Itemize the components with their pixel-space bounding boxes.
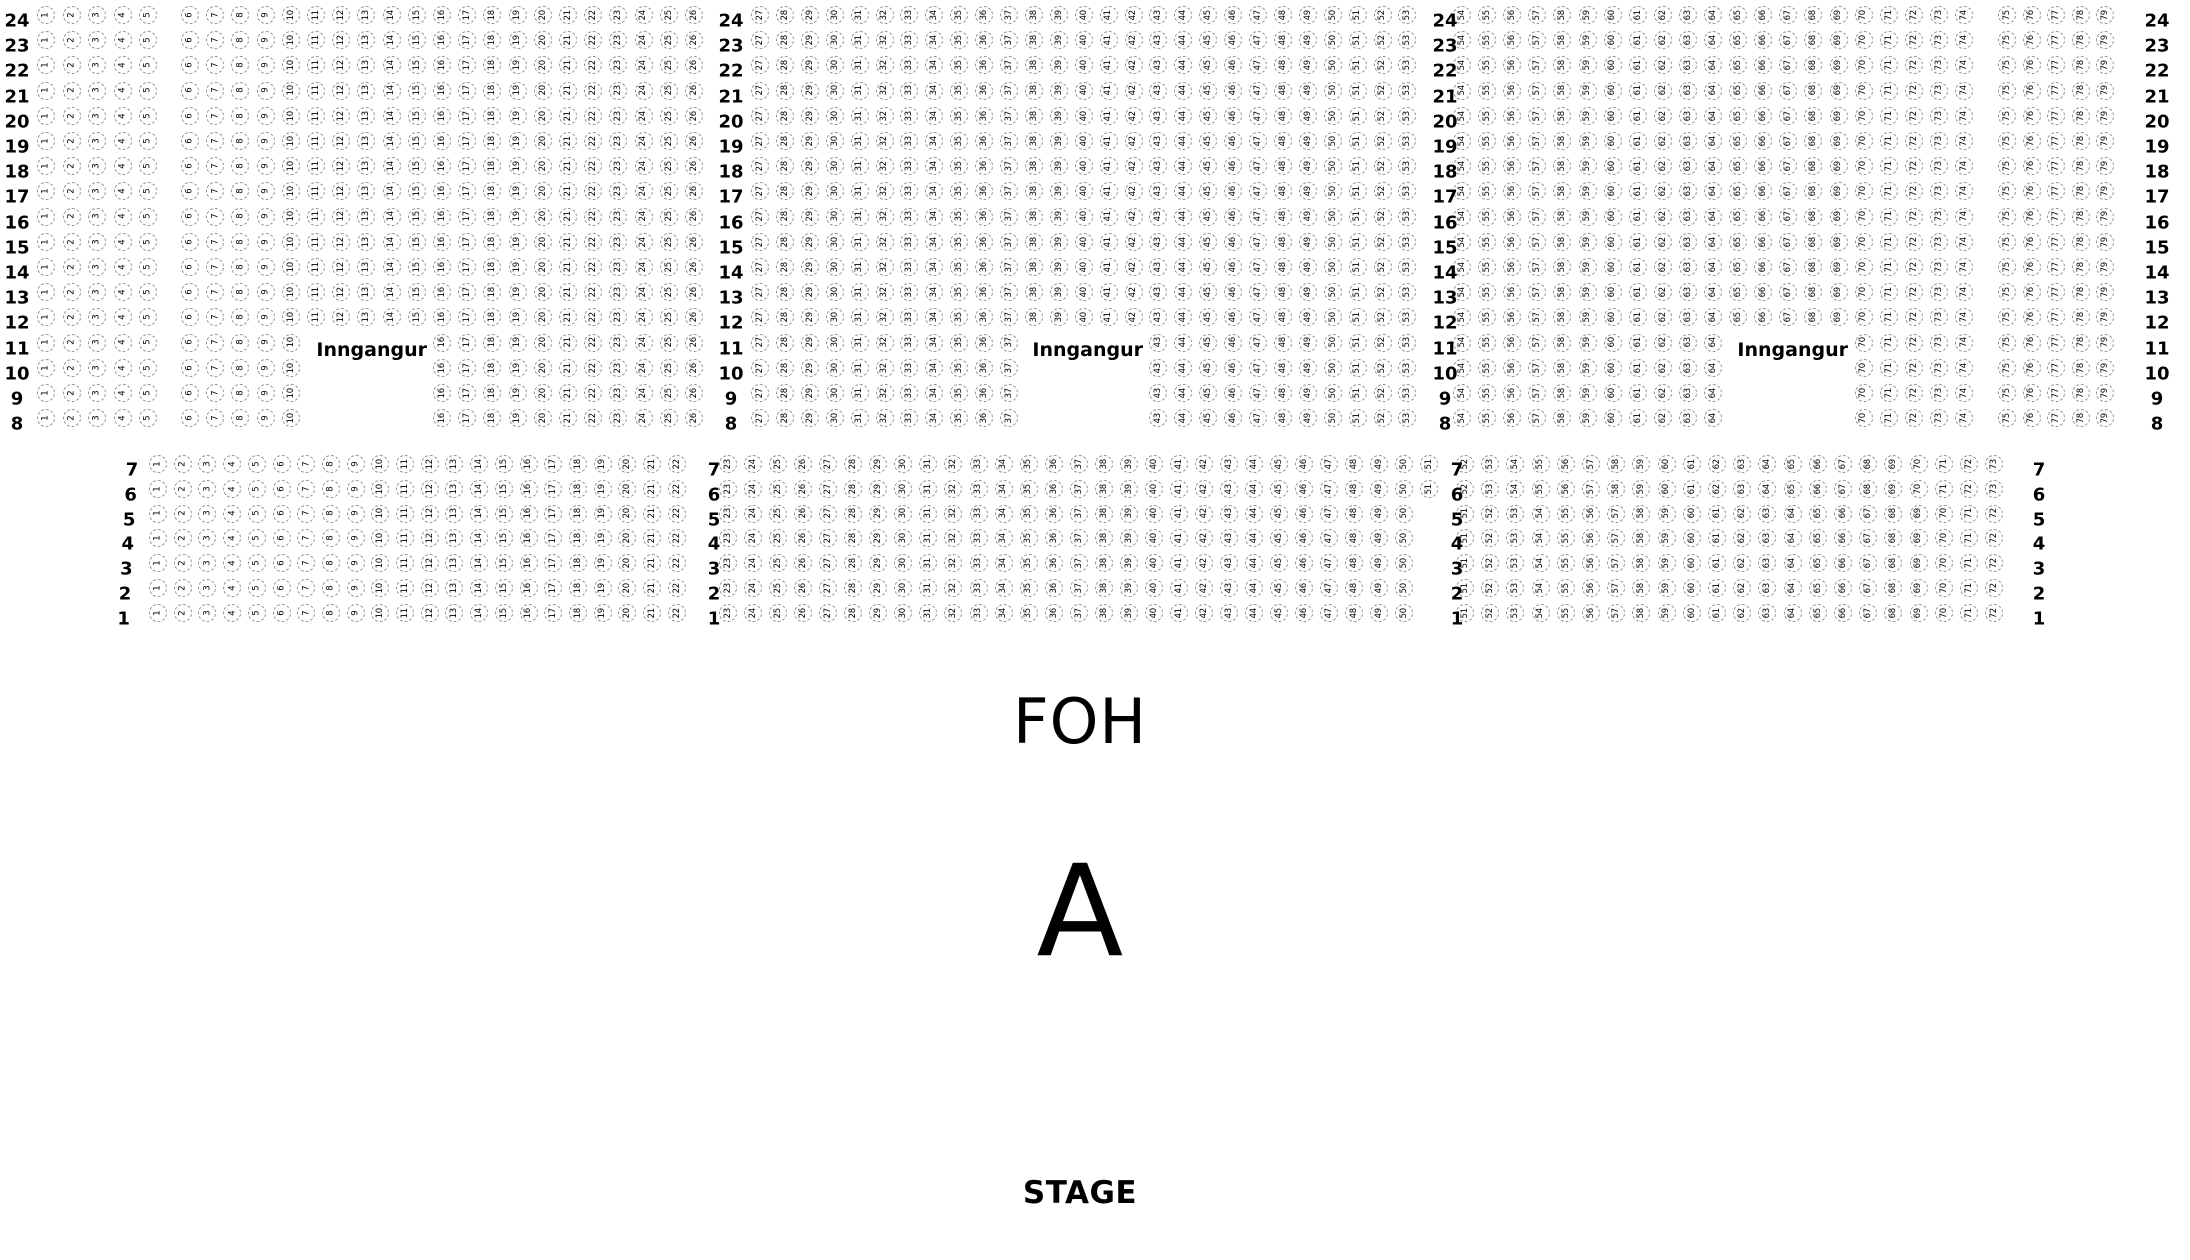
seat[interactable]: 25	[660, 283, 678, 301]
seat[interactable]: 6	[273, 455, 291, 473]
seat[interactable]: 60	[1604, 308, 1622, 326]
seat[interactable]: 32	[876, 384, 894, 402]
seat[interactable]: 29	[801, 334, 819, 352]
seat[interactable]: 9	[257, 31, 275, 49]
seat[interactable]: 65	[1729, 157, 1747, 175]
seat[interactable]: 39	[1050, 82, 1068, 100]
seat[interactable]: 75	[1998, 308, 2016, 326]
seat[interactable]: 52	[1374, 157, 1392, 175]
seat[interactable]: 10	[282, 409, 300, 427]
seat[interactable]: 7	[297, 579, 315, 597]
seat[interactable]: 56	[1503, 208, 1521, 226]
seat[interactable]: 70	[1855, 132, 1873, 150]
seat[interactable]: 36	[1045, 480, 1063, 498]
seat[interactable]: 61	[1683, 480, 1701, 498]
seat[interactable]: 16	[433, 82, 451, 100]
seat[interactable]: 46	[1224, 6, 1242, 24]
seat[interactable]: 13	[445, 455, 463, 473]
seat[interactable]: 27	[751, 409, 769, 427]
seat[interactable]: 30	[894, 529, 912, 547]
seat[interactable]: 3	[88, 233, 106, 251]
seat[interactable]: 53	[1398, 359, 1416, 377]
seat[interactable]: 29	[801, 409, 819, 427]
seat[interactable]: 65	[1729, 107, 1747, 125]
seat[interactable]: 21	[643, 604, 661, 622]
seat[interactable]: 53	[1398, 334, 1416, 352]
seat[interactable]: 29	[801, 132, 819, 150]
seat[interactable]: 11	[307, 132, 325, 150]
seat[interactable]: 27	[751, 258, 769, 276]
seat[interactable]: 37	[1000, 132, 1018, 150]
seat[interactable]: 50	[1324, 82, 1342, 100]
seat[interactable]: 38	[1095, 505, 1113, 523]
seat[interactable]: 44	[1245, 579, 1263, 597]
seat[interactable]: 14	[470, 579, 488, 597]
seat[interactable]: 41	[1100, 258, 1118, 276]
seat[interactable]: 36	[1045, 554, 1063, 572]
seat[interactable]: 32	[944, 505, 962, 523]
seat[interactable]: 40	[1145, 529, 1163, 547]
seat[interactable]: 64	[1784, 529, 1802, 547]
seat[interactable]: 7	[206, 31, 224, 49]
seat[interactable]: 8	[231, 308, 249, 326]
seat[interactable]: 44	[1174, 308, 1192, 326]
seat[interactable]: 4	[114, 359, 132, 377]
seat[interactable]: 42	[1125, 157, 1143, 175]
seat[interactable]: 47	[1249, 6, 1267, 24]
seat[interactable]: 1	[149, 529, 167, 547]
seat[interactable]: 20	[618, 604, 636, 622]
seat[interactable]: 57	[1607, 554, 1625, 572]
seat[interactable]: 72	[1905, 132, 1923, 150]
seat[interactable]: 47	[1249, 308, 1267, 326]
seat[interactable]: 26	[794, 480, 812, 498]
seat[interactable]: 51	[1349, 208, 1367, 226]
seat[interactable]: 24	[744, 554, 762, 572]
seat[interactable]: 32	[876, 334, 894, 352]
seat[interactable]: 44	[1174, 56, 1192, 74]
seat[interactable]: 62	[1654, 31, 1672, 49]
seat[interactable]: 77	[2047, 208, 2065, 226]
seat[interactable]: 71	[1880, 107, 1898, 125]
seat[interactable]: 24	[635, 409, 653, 427]
seat[interactable]: 6	[181, 334, 199, 352]
seat[interactable]: 47	[1249, 384, 1267, 402]
seat[interactable]: 26	[685, 31, 703, 49]
seat[interactable]: 57	[1528, 384, 1546, 402]
seat[interactable]: 3	[88, 384, 106, 402]
seat[interactable]: 8	[322, 554, 340, 572]
seat[interactable]: 73	[1930, 359, 1948, 377]
seat[interactable]: 43	[1149, 157, 1167, 175]
seat[interactable]: 24	[635, 384, 653, 402]
seat[interactable]: 10	[371, 604, 389, 622]
seat[interactable]: 23	[609, 384, 627, 402]
seat[interactable]: 43	[1149, 208, 1167, 226]
seat[interactable]: 2	[63, 384, 81, 402]
seat[interactable]: 4	[114, 384, 132, 402]
seat[interactable]: 79	[2096, 409, 2114, 427]
seat[interactable]: 46	[1224, 132, 1242, 150]
seat[interactable]: 78	[2072, 107, 2090, 125]
seat[interactable]: 48	[1345, 579, 1363, 597]
seat[interactable]: 12	[332, 283, 350, 301]
seat[interactable]: 32	[876, 82, 894, 100]
seat[interactable]: 24	[635, 233, 653, 251]
seat[interactable]: 68	[1884, 529, 1902, 547]
seat[interactable]: 46	[1224, 208, 1242, 226]
seat[interactable]: 78	[2072, 6, 2090, 24]
seat[interactable]: 17	[544, 480, 562, 498]
seat[interactable]: 56	[1503, 56, 1521, 74]
seat[interactable]: 12	[332, 208, 350, 226]
seat[interactable]: 66	[1809, 455, 1827, 473]
seat[interactable]: 39	[1050, 283, 1068, 301]
seat[interactable]: 54	[1453, 409, 1471, 427]
seat[interactable]: 22	[584, 56, 602, 74]
seat[interactable]: 52	[1374, 409, 1392, 427]
seat[interactable]: 73	[1930, 334, 1948, 352]
seat[interactable]: 75	[1998, 31, 2016, 49]
seat[interactable]: 16	[433, 359, 451, 377]
seat[interactable]: 45	[1199, 82, 1217, 100]
seat[interactable]: 10	[282, 82, 300, 100]
seat[interactable]: 26	[685, 334, 703, 352]
seat[interactable]: 24	[635, 107, 653, 125]
seat[interactable]: 75	[1998, 182, 2016, 200]
seat[interactable]: 44	[1245, 554, 1263, 572]
seat[interactable]: 26	[685, 107, 703, 125]
seat[interactable]: 9	[257, 258, 275, 276]
seat[interactable]: 59	[1658, 529, 1676, 547]
seat[interactable]: 61	[1708, 505, 1726, 523]
seat[interactable]: 18	[483, 384, 501, 402]
seat[interactable]: 48	[1345, 505, 1363, 523]
seat[interactable]: 49	[1299, 359, 1317, 377]
seat[interactable]: 47	[1320, 604, 1338, 622]
seat[interactable]: 38	[1025, 82, 1043, 100]
seat[interactable]: 5	[139, 258, 157, 276]
seat[interactable]: 52	[1481, 554, 1499, 572]
seat[interactable]: 28	[776, 157, 794, 175]
seat[interactable]: 16	[433, 334, 451, 352]
seat[interactable]: 63	[1758, 554, 1776, 572]
seat[interactable]: 34	[925, 56, 943, 74]
seat[interactable]: 43	[1149, 258, 1167, 276]
seat[interactable]: 69	[1910, 604, 1928, 622]
seat[interactable]: 50	[1395, 529, 1413, 547]
seat[interactable]: 77	[2047, 157, 2065, 175]
seat[interactable]: 17	[458, 384, 476, 402]
seat[interactable]: 14	[470, 505, 488, 523]
seat[interactable]: 47	[1320, 554, 1338, 572]
seat[interactable]: 21	[559, 107, 577, 125]
seat[interactable]: 2	[63, 182, 81, 200]
seat[interactable]: 54	[1506, 455, 1524, 473]
seat[interactable]: 69	[1910, 579, 1928, 597]
seat[interactable]: 12	[332, 182, 350, 200]
seat[interactable]: 28	[776, 384, 794, 402]
seat[interactable]: 6	[181, 283, 199, 301]
seat[interactable]: 1	[37, 31, 55, 49]
seat[interactable]: 48	[1345, 554, 1363, 572]
seat[interactable]: 13	[357, 107, 375, 125]
seat[interactable]: 50	[1324, 182, 1342, 200]
seat[interactable]: 13	[445, 480, 463, 498]
seat[interactable]: 17	[458, 107, 476, 125]
seat[interactable]: 56	[1503, 334, 1521, 352]
seat[interactable]: 29	[801, 384, 819, 402]
seat[interactable]: 21	[559, 359, 577, 377]
seat[interactable]: 23	[609, 208, 627, 226]
seat[interactable]: 16	[433, 31, 451, 49]
seat[interactable]: 60	[1604, 384, 1622, 402]
seat[interactable]: 78	[2072, 334, 2090, 352]
seat[interactable]: 4	[114, 56, 132, 74]
seat[interactable]: 53	[1481, 455, 1499, 473]
seat[interactable]: 35	[950, 107, 968, 125]
seat[interactable]: 24	[744, 604, 762, 622]
seat[interactable]: 45	[1270, 480, 1288, 498]
seat[interactable]: 33	[900, 82, 918, 100]
seat[interactable]: 56	[1582, 529, 1600, 547]
seat[interactable]: 13	[357, 258, 375, 276]
seat[interactable]: 6	[181, 107, 199, 125]
seat[interactable]: 7	[297, 604, 315, 622]
seat[interactable]: 18	[483, 56, 501, 74]
seat[interactable]: 26	[685, 208, 703, 226]
seat[interactable]: 6	[273, 604, 291, 622]
seat[interactable]: 53	[1398, 233, 1416, 251]
seat[interactable]: 40	[1075, 107, 1093, 125]
seat[interactable]: 15	[495, 579, 513, 597]
seat[interactable]: 60	[1604, 208, 1622, 226]
seat[interactable]: 75	[1998, 107, 2016, 125]
seat[interactable]: 12	[421, 554, 439, 572]
seat[interactable]: 43	[1220, 529, 1238, 547]
seat[interactable]: 7	[297, 480, 315, 498]
seat[interactable]: 53	[1398, 82, 1416, 100]
seat[interactable]: 71	[1880, 283, 1898, 301]
seat[interactable]: 72	[1985, 604, 2003, 622]
seat[interactable]: 47	[1249, 233, 1267, 251]
seat[interactable]: 49	[1299, 6, 1317, 24]
seat[interactable]: 50	[1324, 132, 1342, 150]
seat[interactable]: 22	[584, 107, 602, 125]
seat[interactable]: 58	[1632, 579, 1650, 597]
seat[interactable]: 28	[844, 480, 862, 498]
seat[interactable]: 14	[383, 6, 401, 24]
seat[interactable]: 44	[1174, 233, 1192, 251]
seat[interactable]: 16	[520, 529, 538, 547]
seat[interactable]: 71	[1880, 31, 1898, 49]
seat[interactable]: 18	[483, 31, 501, 49]
seat[interactable]: 66	[1754, 182, 1772, 200]
seat[interactable]: 11	[396, 554, 414, 572]
seat[interactable]: 18	[483, 283, 501, 301]
seat[interactable]: 77	[2047, 283, 2065, 301]
seat[interactable]: 76	[2023, 107, 2041, 125]
seat[interactable]: 34	[995, 554, 1013, 572]
seat[interactable]: 39	[1050, 6, 1068, 24]
seat[interactable]: 25	[660, 6, 678, 24]
seat[interactable]: 45	[1199, 56, 1217, 74]
seat[interactable]: 48	[1274, 157, 1292, 175]
seat[interactable]: 2	[63, 132, 81, 150]
seat[interactable]: 22	[584, 82, 602, 100]
seat[interactable]: 62	[1708, 455, 1726, 473]
seat[interactable]: 57	[1528, 157, 1546, 175]
seat[interactable]: 38	[1095, 455, 1113, 473]
seat[interactable]: 43	[1149, 31, 1167, 49]
seat[interactable]: 44	[1245, 604, 1263, 622]
seat[interactable]: 4	[114, 409, 132, 427]
seat[interactable]: 58	[1632, 604, 1650, 622]
seat[interactable]: 42	[1125, 107, 1143, 125]
seat[interactable]: 30	[826, 283, 844, 301]
seat[interactable]: 74	[1955, 359, 1973, 377]
seat[interactable]: 28	[776, 182, 794, 200]
seat[interactable]: 62	[1733, 604, 1751, 622]
seat[interactable]: 18	[483, 157, 501, 175]
seat[interactable]: 19	[509, 6, 527, 24]
seat[interactable]: 31	[851, 6, 869, 24]
seat[interactable]: 35	[950, 409, 968, 427]
seat[interactable]: 6	[273, 554, 291, 572]
seat[interactable]: 31	[851, 208, 869, 226]
seat[interactable]: 49	[1370, 554, 1388, 572]
seat[interactable]: 44	[1174, 258, 1192, 276]
seat[interactable]: 30	[826, 56, 844, 74]
seat[interactable]: 66	[1754, 233, 1772, 251]
seat[interactable]: 58	[1553, 82, 1571, 100]
seat[interactable]: 63	[1679, 182, 1697, 200]
seat[interactable]: 27	[819, 604, 837, 622]
seat[interactable]: 64	[1704, 308, 1722, 326]
seat[interactable]: 25	[769, 455, 787, 473]
seat[interactable]: 48	[1274, 283, 1292, 301]
seat[interactable]: 49	[1299, 283, 1317, 301]
seat[interactable]: 34	[925, 182, 943, 200]
seat[interactable]: 60	[1604, 233, 1622, 251]
seat[interactable]: 66	[1754, 157, 1772, 175]
seat[interactable]: 70	[1855, 208, 1873, 226]
seat[interactable]: 40	[1075, 283, 1093, 301]
seat[interactable]: 43	[1149, 359, 1167, 377]
seat[interactable]: 4	[114, 208, 132, 226]
seat[interactable]: 27	[819, 455, 837, 473]
seat[interactable]: 22	[584, 208, 602, 226]
seat[interactable]: 11	[307, 82, 325, 100]
seat[interactable]: 40	[1075, 157, 1093, 175]
seat[interactable]: 25	[769, 579, 787, 597]
seat[interactable]: 33	[970, 505, 988, 523]
seat[interactable]: 51	[1349, 409, 1367, 427]
seat[interactable]: 65	[1729, 283, 1747, 301]
seat[interactable]: 58	[1553, 31, 1571, 49]
seat[interactable]: 51	[1420, 455, 1438, 473]
seat[interactable]: 59	[1579, 31, 1597, 49]
seat[interactable]: 57	[1528, 31, 1546, 49]
seat[interactable]: 52	[1374, 359, 1392, 377]
seat[interactable]: 35	[1020, 480, 1038, 498]
seat[interactable]: 8	[322, 604, 340, 622]
seat[interactable]: 34	[925, 384, 943, 402]
seat[interactable]: 13	[445, 579, 463, 597]
seat[interactable]: 19	[509, 334, 527, 352]
seat[interactable]: 45	[1199, 157, 1217, 175]
seat[interactable]: 66	[1754, 208, 1772, 226]
seat[interactable]: 30	[826, 82, 844, 100]
seat[interactable]: 38	[1025, 233, 1043, 251]
seat[interactable]: 19	[509, 384, 527, 402]
seat[interactable]: 20	[618, 579, 636, 597]
seat[interactable]: 9	[347, 455, 365, 473]
seat[interactable]: 29	[869, 579, 887, 597]
seat[interactable]: 64	[1784, 505, 1802, 523]
seat[interactable]: 61	[1629, 31, 1647, 49]
seat[interactable]: 46	[1224, 384, 1242, 402]
seat[interactable]: 65	[1729, 308, 1747, 326]
seat[interactable]: 56	[1503, 258, 1521, 276]
seat[interactable]: 20	[618, 554, 636, 572]
seat[interactable]: 23	[609, 107, 627, 125]
seat[interactable]: 40	[1145, 579, 1163, 597]
seat[interactable]: 62	[1654, 208, 1672, 226]
seat[interactable]: 21	[559, 56, 577, 74]
seat[interactable]: 37	[1000, 283, 1018, 301]
seat[interactable]: 10	[282, 359, 300, 377]
seat[interactable]: 23	[719, 505, 737, 523]
seat[interactable]: 71	[1880, 132, 1898, 150]
seat[interactable]: 41	[1100, 107, 1118, 125]
seat[interactable]: 75	[1998, 56, 2016, 74]
seat[interactable]: 36	[975, 359, 993, 377]
seat[interactable]: 10	[282, 31, 300, 49]
seat[interactable]: 42	[1125, 56, 1143, 74]
seat[interactable]: 22	[584, 6, 602, 24]
seat[interactable]: 39	[1050, 132, 1068, 150]
seat[interactable]: 37	[1000, 308, 1018, 326]
seat[interactable]: 56	[1557, 480, 1575, 498]
seat[interactable]: 38	[1025, 132, 1043, 150]
seat[interactable]: 72	[1905, 409, 1923, 427]
seat[interactable]: 56	[1582, 505, 1600, 523]
seat[interactable]: 20	[534, 233, 552, 251]
seat[interactable]: 6	[273, 529, 291, 547]
seat[interactable]: 74	[1955, 409, 1973, 427]
seat[interactable]: 74	[1955, 208, 1973, 226]
seat[interactable]: 75	[1998, 258, 2016, 276]
seat[interactable]: 43	[1149, 334, 1167, 352]
seat[interactable]: 41	[1170, 554, 1188, 572]
seat[interactable]: 10	[282, 384, 300, 402]
seat[interactable]: 72	[1905, 56, 1923, 74]
seat[interactable]: 12	[332, 157, 350, 175]
seat[interactable]: 72	[1985, 579, 2003, 597]
seat[interactable]: 46	[1224, 308, 1242, 326]
seat[interactable]: 73	[1930, 308, 1948, 326]
seat[interactable]: 13	[357, 182, 375, 200]
seat[interactable]: 62	[1733, 579, 1751, 597]
seat[interactable]: 71	[1880, 6, 1898, 24]
seat[interactable]: 3	[198, 554, 216, 572]
seat[interactable]: 17	[458, 233, 476, 251]
seat[interactable]: 29	[869, 480, 887, 498]
seat[interactable]: 63	[1758, 604, 1776, 622]
seat[interactable]: 76	[2023, 208, 2041, 226]
seat[interactable]: 53	[1398, 283, 1416, 301]
